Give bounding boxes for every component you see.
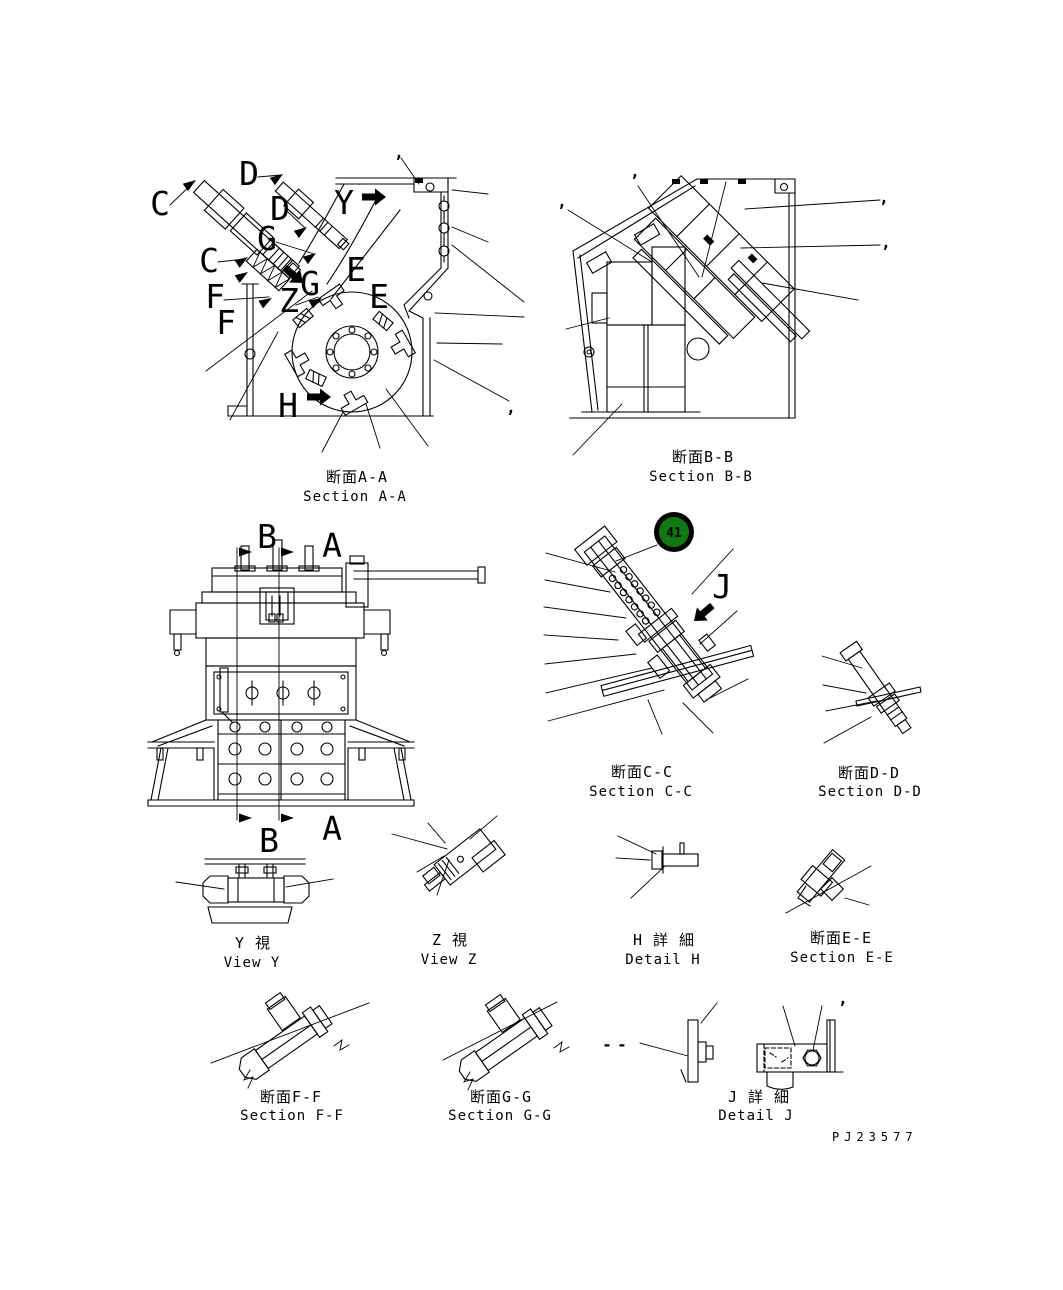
marker-G1: G <box>257 219 277 258</box>
marker-Y: Y <box>334 183 354 222</box>
view-z: Z 視 View Z <box>392 816 505 968</box>
caption-gg-en: Section G-G <box>448 1108 552 1124</box>
callout-comma: , <box>394 143 404 162</box>
callout-comma: , <box>838 989 848 1008</box>
caption-z-jp: Z 視 <box>432 931 468 949</box>
view-section-f-f: 断面F-F Section F-F <box>211 992 369 1124</box>
caption-gg-jp: 断面G-G <box>470 1088 532 1106</box>
view-section-a-a: C D D G C G E Z E F F Y H 断面A-A Section … <box>150 154 524 505</box>
leader-lines-b-b <box>566 182 880 455</box>
marker-C2: C <box>199 241 219 280</box>
parts-diagram-page: C D D G C G E Z E F F Y H 断面A-A Section … <box>0 0 1063 1290</box>
drawing-number: PJ23577 <box>832 1130 918 1144</box>
plate-assembly-ee <box>793 846 848 905</box>
marker-B-top: B <box>257 517 277 556</box>
marker-B-bottom: B <box>259 821 279 860</box>
callout-comma: , <box>630 162 640 181</box>
marker-A-bottom: A <box>322 809 342 848</box>
caption-y-jp: Y 視 <box>235 934 271 952</box>
caption-aa-jp: 断面A-A <box>326 468 388 486</box>
marker-H: H <box>278 386 298 425</box>
caption-ee-jp: 断面E-E <box>810 929 872 947</box>
caption-ee-en: Section E-E <box>790 950 894 966</box>
marker-J: J <box>712 567 732 606</box>
view-section-c-c: 41 J 断面C-C Section C-C <box>544 512 754 800</box>
caption-ff-jp: 断面F-F <box>260 1088 322 1106</box>
callout-comma: , <box>506 398 516 417</box>
marker-E2: E <box>369 277 389 316</box>
marker-C1: C <box>150 184 170 223</box>
marker-E1: E <box>346 250 366 289</box>
caption-z-en: View Z <box>421 952 478 968</box>
caption-ff-en: Section F-F <box>240 1108 344 1124</box>
marker-G2: G <box>300 264 320 303</box>
callout-dash: - <box>617 1035 627 1054</box>
callout-dash: - <box>602 1035 612 1054</box>
bolt-assembly-dd <box>838 640 918 738</box>
view-section-b-b: 断面B-B Section B-B <box>566 176 880 485</box>
view-section-g-g: 断面G-G Section G-G <box>443 994 569 1124</box>
machine-skirt-legs <box>148 720 414 806</box>
caption-h-en: Detail H <box>625 952 700 968</box>
marker-F2: F <box>216 303 236 342</box>
parts-diagram-canvas: C D D G C G E Z E F F Y H 断面A-A Section … <box>0 0 1063 1290</box>
caption-dd-en: Section D-D <box>818 784 922 800</box>
marker-D1: D <box>239 154 259 193</box>
view-front-elevation: B A A B <box>148 517 485 860</box>
caption-bb-en: Section B-B <box>649 469 753 485</box>
diagonal-strip <box>724 260 810 346</box>
callout-comma: , <box>557 192 567 211</box>
machine-body <box>170 540 485 722</box>
caption-cc-en: Section C-C <box>589 784 693 800</box>
base-strip <box>601 645 754 696</box>
view-detail-j: - - J 詳 細 Detail J <box>602 1003 843 1124</box>
detail-j-plan-view <box>757 1006 843 1089</box>
view-y: Y 視 View Y <box>176 859 333 971</box>
part-highlight-41: 41 <box>654 512 694 552</box>
bracket-z <box>418 826 505 905</box>
caption-dd-jp: 断面D-D <box>838 764 900 782</box>
view-section-d-d: 断面D-D Section D-D <box>818 640 922 800</box>
highlight-part-number: 41 <box>666 526 682 541</box>
view-detail-h: H 詳 細 Detail H <box>616 836 701 968</box>
caption-h-jp: H 詳 細 <box>633 931 695 949</box>
callout-comma: , <box>879 188 889 207</box>
callout-comma: , <box>881 233 891 252</box>
marker-A-top: A <box>322 526 342 565</box>
rotor <box>285 284 416 415</box>
caption-j-jp: J 詳 細 <box>728 1088 790 1106</box>
caption-j-en: Detail J <box>718 1108 793 1124</box>
caption-cc-jp: 断面C-C <box>611 763 673 781</box>
detail-h-arrow-icon <box>307 389 331 406</box>
caption-aa-en: Section A-A <box>303 489 407 505</box>
detail-j-side-view <box>640 1003 717 1082</box>
caption-bb-jp: 断面B-B <box>672 448 734 466</box>
blanked-callouts: , , , , , , , <box>394 143 891 1008</box>
caption-y-en: View Y <box>224 955 281 971</box>
marker-Z: Z <box>279 281 299 320</box>
view-section-e-e: 断面E-E Section E-E <box>786 846 894 966</box>
